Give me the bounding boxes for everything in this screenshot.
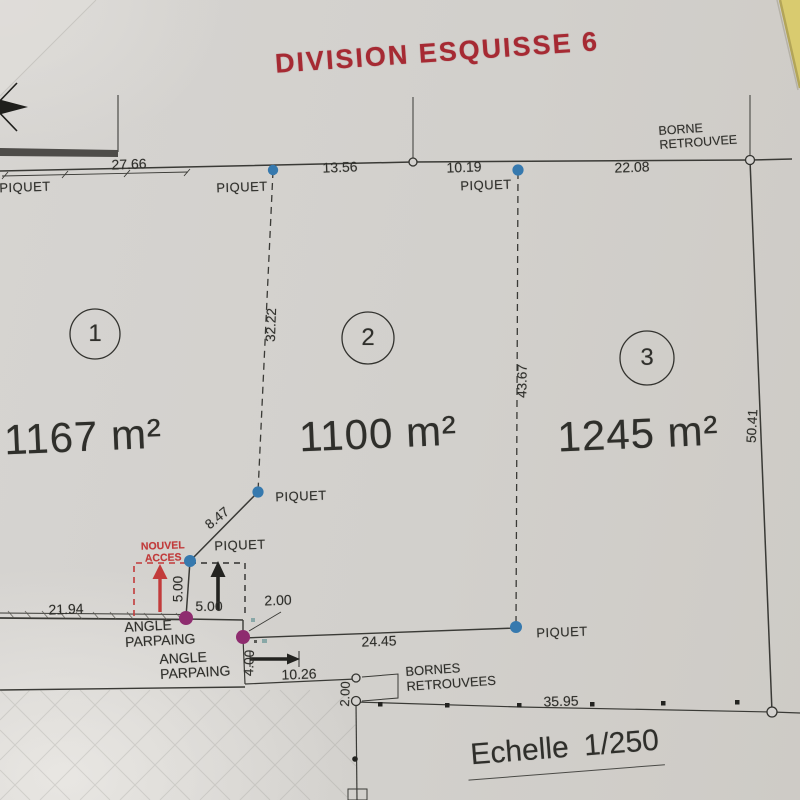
dim-divider-1-2: 32.22 xyxy=(263,308,279,342)
nouvel-acces-label: NOUVEL ACCES xyxy=(141,539,186,565)
piquet-label-6: PIQUET xyxy=(536,624,588,641)
dim-parcel2-south: 24.45 xyxy=(361,632,397,649)
dim-lower-height: 4.00 xyxy=(241,650,257,677)
piquet-label-5: PIQUET xyxy=(214,537,266,554)
red-arrow-icon xyxy=(153,564,168,612)
plan-drawing xyxy=(0,0,800,800)
dim-south: 35.95 xyxy=(543,693,578,710)
piquet-label-3: PIQUET xyxy=(460,177,512,194)
dim-top-3: 10.19 xyxy=(446,158,482,175)
dim-access-horizontal: 5.00 xyxy=(195,598,222,614)
dim-borne-gap: 2.00 xyxy=(337,681,353,707)
dim-access-offset: 2.00 xyxy=(264,592,292,609)
parcel-2-number: 2 xyxy=(361,324,374,352)
parcel-3-number: 3 xyxy=(640,344,653,372)
road-hatch xyxy=(0,690,356,800)
dim-lower-width: 10.26 xyxy=(281,665,317,682)
parcel-3-area: 1245 m² xyxy=(556,407,719,462)
piquet-label-4: PIQUET xyxy=(275,488,327,505)
dim-divider-2-3: 43.67 xyxy=(514,364,530,398)
dim-top-1: 27.66 xyxy=(111,155,147,172)
divider-2-3 xyxy=(516,172,518,627)
dimension-arrow-icon xyxy=(250,651,300,667)
dim-access-vertical: 5.00 xyxy=(171,576,186,602)
dim-top-4: 22.08 xyxy=(614,158,650,175)
survey-plan-photo: DIVISION ESQUISSE 6 27.66 13.56 10.19 22… xyxy=(0,0,800,800)
desk-corner xyxy=(777,0,800,90)
dim-west-low: 21.94 xyxy=(48,600,84,617)
dim-top-2: 13.56 xyxy=(322,158,358,175)
parcel-1-area: 1167 m² xyxy=(3,410,163,465)
nouvel-acces-line-2: ACCES xyxy=(141,551,185,565)
angle-parpaing-label-1: ANGLE PARPAING xyxy=(124,616,196,650)
angle-parpaing-label-2: ANGLE PARPAING xyxy=(159,648,231,682)
parcel-1-number: 1 xyxy=(88,320,101,348)
parcel-2-area: 1100 m² xyxy=(298,407,458,462)
borne-retrouvee-label: BORNE RETROUVEE xyxy=(658,119,738,152)
piquet-label-1: PIQUET xyxy=(0,179,51,196)
piquet-label-2: PIQUET xyxy=(216,179,268,196)
dim-east-side: 50.41 xyxy=(744,409,761,444)
